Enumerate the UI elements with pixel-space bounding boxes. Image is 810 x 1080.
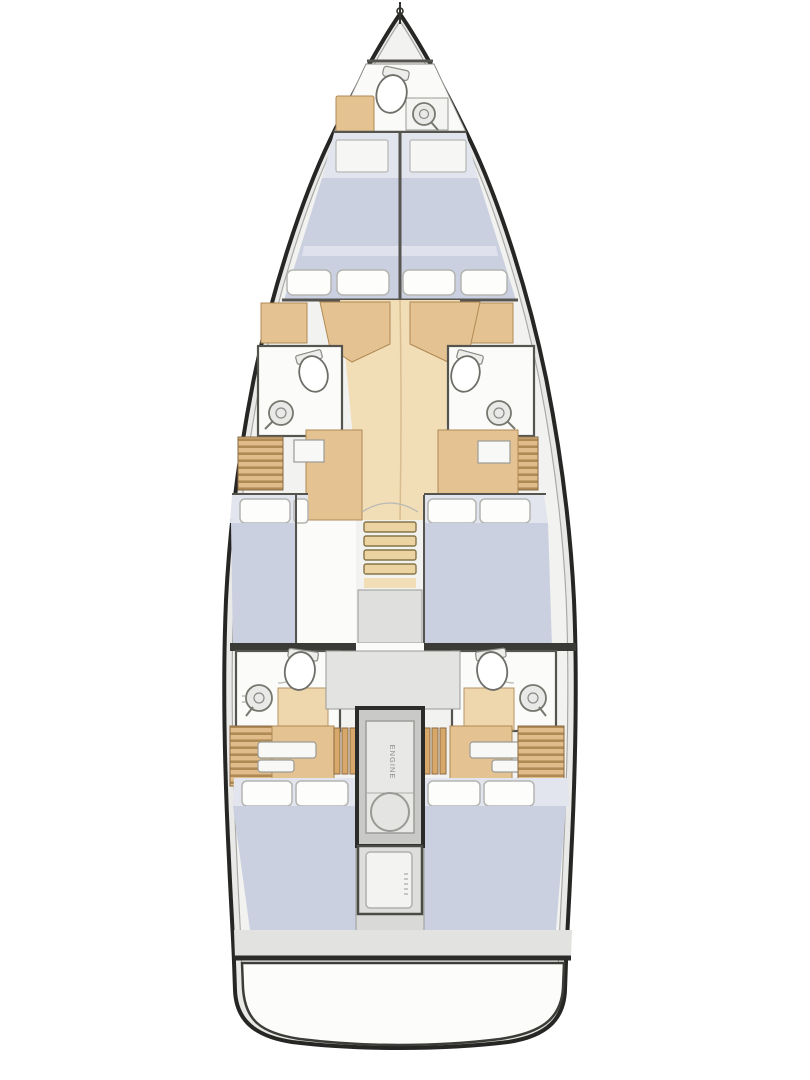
forward-cabins [282, 133, 518, 300]
mid-cabin-port [230, 494, 308, 647]
wardrobe-slats-port [238, 437, 283, 490]
pillow [242, 781, 292, 806]
mid-berth-starboard [424, 523, 552, 647]
pillow [461, 270, 507, 295]
aft-bulkhead [230, 643, 576, 651]
engine-compartment: ENGINE [357, 708, 423, 846]
pillow [480, 499, 530, 523]
pillow [240, 499, 290, 523]
forward-head-port [258, 346, 342, 436]
pillow [428, 781, 480, 806]
pillow [287, 270, 331, 295]
forward-headboard-port [336, 140, 388, 172]
pillow [484, 781, 534, 806]
aft-head-starboard [452, 648, 556, 731]
stern-hatch-lid [366, 852, 412, 908]
bow-head-locker [336, 96, 374, 132]
transom-zone [234, 930, 572, 958]
shower-floor [278, 688, 328, 730]
companionway-opening [356, 643, 424, 651]
mid-berth-port [231, 523, 296, 647]
stair-tread [364, 564, 416, 574]
seat-port [294, 440, 324, 462]
stern-hatch [358, 846, 422, 914]
stair-tread [364, 550, 416, 560]
mid-cabin-starboard [424, 494, 552, 647]
stair-tread [364, 536, 416, 546]
companionway-base [358, 590, 422, 643]
forward-head-starboard [447, 346, 534, 436]
aft-berth-starboard [424, 806, 566, 930]
entry-step [258, 742, 316, 758]
pillow [403, 270, 455, 295]
desk-port-outer [261, 303, 307, 343]
companionway-stairs [358, 503, 422, 643]
stair-tread [364, 522, 416, 532]
aft-cabin-starboard [424, 778, 569, 930]
stern [234, 930, 572, 1045]
stair-landing [364, 578, 416, 588]
shower-floor [464, 688, 514, 730]
yacht-floorplan: ENGINE [0, 0, 810, 1080]
louver-planks-port [334, 728, 356, 774]
entry-step [258, 760, 294, 772]
engine-flywheel [371, 793, 409, 831]
pillow [428, 499, 476, 523]
companionway-landing [326, 651, 460, 709]
bow-head [334, 64, 466, 132]
floorplan-svg: ENGINE [0, 0, 810, 1080]
seat-starboard [478, 441, 510, 463]
forward-headboard-starboard [410, 140, 466, 172]
swim-platform [242, 963, 564, 1045]
wardrobe-slats-starboard-aft [518, 726, 564, 786]
pillow [337, 270, 389, 295]
louver-planks-starboard [424, 728, 446, 774]
pillow [296, 781, 348, 806]
aft-head-port [236, 648, 340, 731]
aft-berth-port [233, 806, 356, 930]
engine-label: ENGINE [388, 745, 397, 780]
aft-cabin-port [233, 778, 358, 930]
